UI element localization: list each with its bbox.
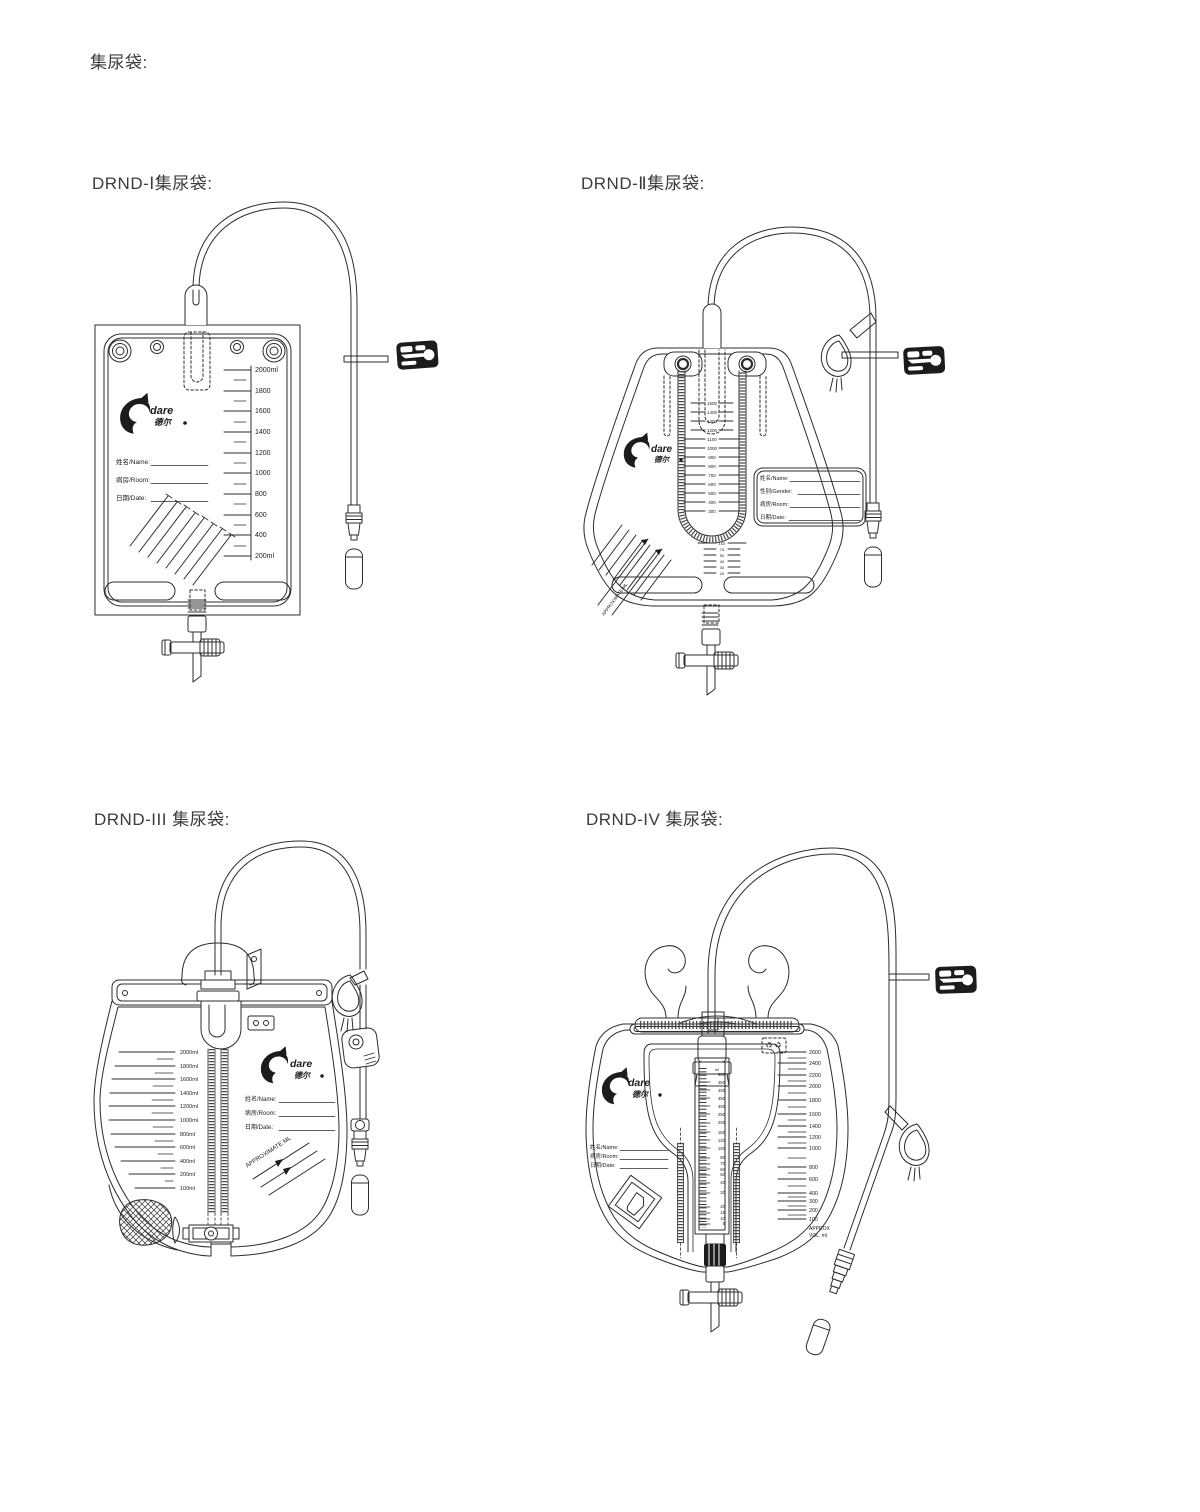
scale-label: 1500 [707,401,718,406]
field-room: 病房/Room: [590,1152,619,1160]
meter-label: 30 [720,1190,725,1195]
scale-label: 300 [708,509,716,514]
bottle-symbol [604,1171,666,1233]
meter-label: 400 [718,1088,726,1093]
brand-name: dare [651,444,673,455]
drnd4-hanger-hooks [645,946,789,1018]
brand-logo: dare 德尔 [602,1067,662,1104]
scale-label: 50 [720,553,725,558]
meter-label: 300 [718,1104,726,1109]
scale-label: 1800 [255,388,271,395]
brand-name: dare [290,1058,312,1070]
catheter-connector-icon [352,1131,369,1215]
scale-label: 600 [255,512,267,519]
scale-label: 1200 [707,428,718,433]
scale-label: 800 [809,1165,818,1171]
meter-label: 500 [718,1072,726,1077]
luer-connector [351,1119,369,1131]
scale-label: 1200 [255,450,271,457]
scale-label: 1200ml [180,1104,198,1110]
meter-label: 350 [718,1096,726,1101]
brand-name-cn: 德尔 [654,455,670,464]
scale-label: 1600 [809,1112,821,1118]
scale-label: 800ml [180,1132,195,1138]
drnd3-scale-labels: 2000ml 1800ml 1600ml 1400ml 1200ml 1000m… [180,1050,198,1192]
scale-label: 1400 [707,410,718,415]
scale-label: 200 [809,1208,818,1214]
scale-label: 2600 [809,1050,821,1056]
field-gender: 性别/Gender: [760,487,793,495]
connector-cap [804,1317,832,1357]
scale-label: 300 [809,1199,818,1205]
scale-label: 1100 [707,437,717,442]
meter-label: 20 [720,1204,725,1209]
field-name: 姓名/Name: [590,1143,619,1151]
drnd4-diagram: ml 500 450 400 350 300 250 200 150 120 1… [578,828,1068,1423]
scale-label: 800 [708,464,716,469]
brand-logo: dare 德尔 [120,393,187,434]
brand-name-cn: 德尔 [632,1090,650,1099]
patient-info-fields: 姓名/Name: 病房/Room: 日期/Date: [590,1143,668,1169]
meter-label: 70 [720,1161,725,1166]
scale-label: 700 [708,473,716,478]
drnd4-sticker [762,1038,786,1053]
scale-label: 1300 [707,419,718,424]
drnd4-scale [778,1052,806,1219]
drnd3-scale [109,1052,175,1188]
scale-label: 600ml [180,1145,195,1151]
meter-label: 50 [720,1172,725,1177]
field-date: 日期/Date: [116,494,147,502]
meter-label: 15 [720,1210,725,1215]
approx-label: APPROX [809,1226,831,1232]
meter-label: 250 [718,1112,726,1117]
patient-info-fields: 姓名/Name: 病房/Room: 日期/Date: [245,1095,335,1131]
patient-info-fields: 姓名/Name: 病房/Room: 日期/Date: [116,457,208,502]
meter-label: 120 [718,1138,726,1143]
approx-label: APPROXIMATE ML [245,1135,293,1169]
scale-label: 1800 [809,1098,821,1104]
page-title: 集尿袋: [90,48,148,73]
section-label-drnd1: DRND-Ⅰ集尿袋: [92,169,213,194]
scale-label: 2200 [809,1073,821,1079]
scale-label: 1000ml [180,1118,198,1124]
outlet-t-valve-icon [676,629,738,695]
scale-label: 1800ml [180,1064,198,1070]
drnd3-drip-chamber [197,971,241,1049]
scale-label: 1200 [809,1135,821,1141]
scale-label: 600 [708,482,716,487]
pinch-clamp-icon [903,346,945,375]
scale-label: 400ml [180,1159,195,1165]
roller-clamp-icon [341,1027,380,1069]
drnd1-outlet [188,590,206,612]
scale-label: 100 [719,541,726,546]
drnd3-vent-plate [248,1016,274,1030]
field-name: 姓名/Name: [760,474,789,482]
section-label-drnd4: DRND-IV 集尿袋: [586,805,723,830]
drnd2-info-box: 姓名/Name: 性别/Gender: 病房/Room: 日期/Date: [754,468,866,526]
scale-label: 2400 [809,1061,821,1067]
scale-label: 1400 [809,1124,821,1130]
scale-label: 800 [255,491,267,498]
scale-label: 900 [708,455,716,460]
drnd3-channel-outlines [208,1049,228,1227]
meter-label: 40 [720,1180,725,1185]
drnd1-diagram: 2000ml 1800 1600 1400 1200 1000 800 600 … [88,192,458,702]
scale-label: 100 [809,1217,818,1223]
catheter-connector-icon [865,503,882,587]
scale-label: 40 [720,559,725,564]
drnd3-diagram: 2000ml 1800ml 1600ml 1400ml 1200ml 1000m… [85,823,485,1313]
drnd1-scale [224,366,251,560]
field-room: 病房/Room: [760,500,789,508]
meter-label: 200 [718,1120,726,1125]
drnd3-outlet-valve [183,1225,239,1242]
scale-label: 400 [809,1191,818,1197]
scale-label: 1600 [255,408,271,415]
scale-label: 20 [720,571,725,576]
drnd2-small-scale-labels: 100 75 50 40 30 20 [719,541,726,576]
drnd2-inlet-port [703,304,721,348]
outlet-t-valve-icon [680,1266,742,1332]
drnd3-approx-label: APPROXIMATE ML [245,1135,325,1195]
field-name: 姓名/Name: [245,1095,277,1103]
approx-label: VOL. ml [809,1233,827,1239]
field-date: 日期/Date: [245,1123,273,1131]
scale-label: 500 [708,491,716,496]
meter-label: 150 [718,1130,726,1135]
catheter-connector-icon [346,505,363,589]
scale-label: 1600ml [180,1077,198,1083]
meter-label: 80 [720,1155,725,1160]
scale-label: 200ml [180,1172,195,1178]
brand-name: dare [150,405,173,417]
outlet-t-valve-icon [162,616,224,682]
scale-label: 2000ml [255,367,278,374]
sampling-port-icon [821,335,851,392]
pinch-clamp-icon [935,966,977,994]
field-name: 姓名/Name: [116,457,150,466]
scale-label: 1400 [255,429,271,436]
drnd1-fold-scale [130,494,235,585]
pinch-clamp-icon [396,340,439,370]
scale-label: 75 [720,547,725,552]
brand-logo: dare 德尔 [624,433,683,468]
meter-label: 100 [718,1146,726,1151]
scale-label: 2000 [809,1084,821,1090]
field-room: 病房/Room: [116,475,150,484]
section-label-drnd2: DRND-Ⅱ集尿袋: [581,169,705,194]
scale-label: 600 [809,1177,818,1183]
scale-label: 200ml [255,553,275,560]
drnd1-scale-labels: 2000ml 1800 1600 1400 1200 1000 800 600 … [255,367,278,560]
brand-name: dare [628,1077,650,1089]
drnd2-scale-labels: 1500 1400 1300 1200 1100 1000 900 800 70… [707,401,718,514]
scale-label: 30 [720,565,725,570]
scale-label: 1000 [255,470,271,477]
brand-name-cn: 德尔 [154,417,173,427]
scale-label: 1000 [707,446,718,451]
scale-label: 1400ml [180,1091,198,1097]
catheter-connector-icon [825,1249,854,1295]
scale-label: 2000ml [180,1050,198,1056]
scale-label: 400 [255,532,267,539]
drnd4-outlet [704,1234,726,1266]
drnd2-diagram: 1500 1400 1300 1200 1100 1000 900 800 70… [578,213,948,713]
sampling-port-icon [899,1124,929,1181]
scale-label: 1000 [809,1146,821,1152]
field-date: 日期/Date: [760,514,786,521]
brand-name-cn: 德尔 [294,1071,312,1080]
scale-label: 100ml [180,1186,195,1192]
brand-logo: dare 德尔 [261,1046,324,1083]
drnd2-outlet [702,605,719,625]
field-room: 病房/Room: [245,1109,277,1117]
catalog-page: { "page": { "title": "集尿袋:", "background… [0,0,1200,1512]
scale-label: 400 [708,500,716,505]
meter-label: 450 [718,1080,726,1085]
field-date: 日期/Date: [590,1162,616,1169]
